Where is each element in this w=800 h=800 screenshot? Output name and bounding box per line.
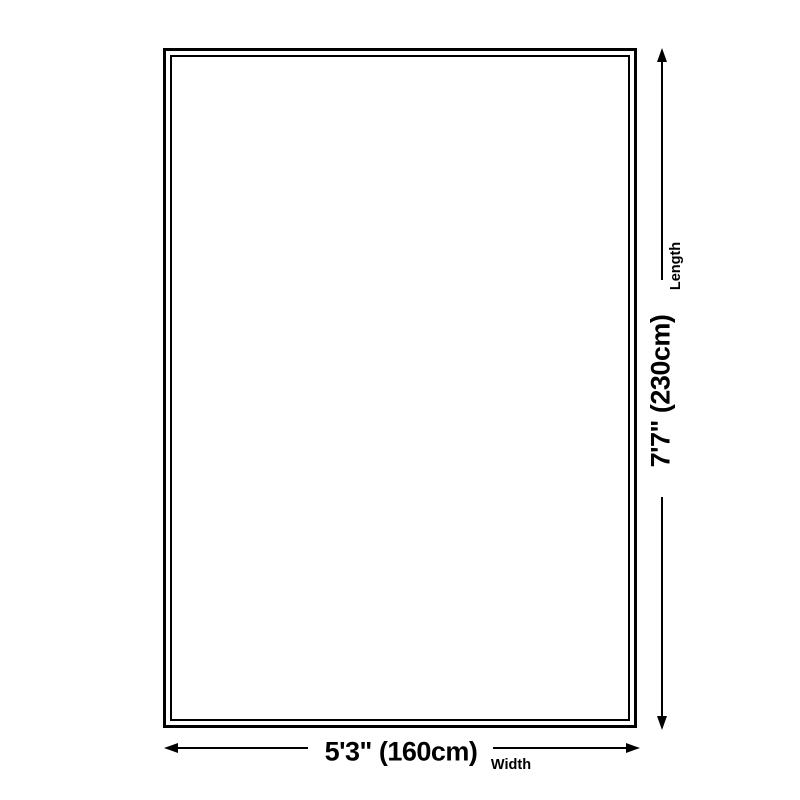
product-outline-inner-border xyxy=(170,55,630,721)
length-arrow-top-segment xyxy=(661,60,664,280)
width-arrow-right-segment xyxy=(493,747,628,750)
width-value: 5'3" (160cm) xyxy=(325,739,478,766)
length-value: 7'7" (230cm) xyxy=(648,315,675,468)
arrow-down-icon xyxy=(657,716,667,730)
arrow-right-icon xyxy=(626,743,640,753)
width-arrow-left-segment xyxy=(176,747,308,750)
length-arrow-bottom-segment xyxy=(661,497,664,719)
dimension-diagram: Length 7'7" (230cm) 5'3" (160cm) Width xyxy=(0,0,800,800)
product-outline xyxy=(163,48,637,728)
length-label: Length xyxy=(669,242,684,290)
width-label: Width xyxy=(491,758,531,773)
